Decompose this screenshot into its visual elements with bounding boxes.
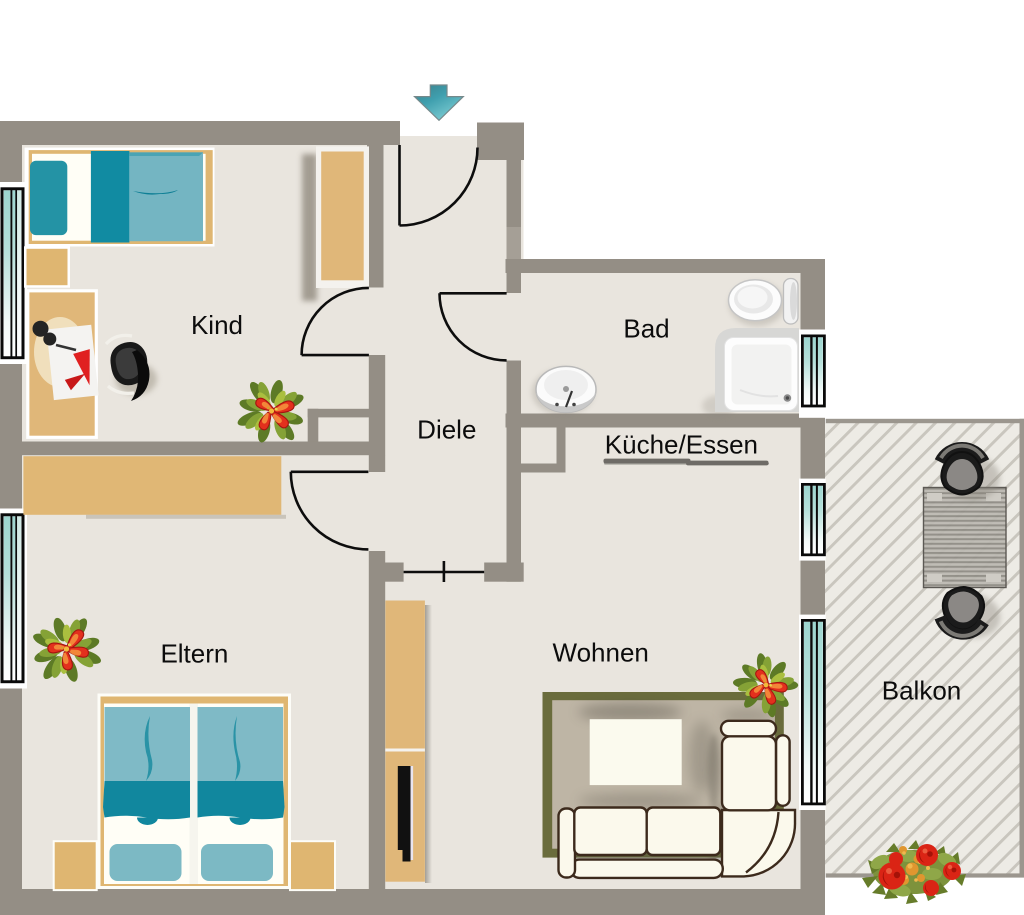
svg-text:Kind: Kind xyxy=(191,310,243,340)
svg-text:Eltern: Eltern xyxy=(160,639,228,669)
svg-text:Küche/Essen: Küche/Essen xyxy=(605,430,758,460)
svg-text:Balkon: Balkon xyxy=(882,675,962,705)
svg-text:Diele: Diele xyxy=(417,415,476,445)
svg-text:Wohnen: Wohnen xyxy=(553,638,649,668)
svg-text:Bad: Bad xyxy=(623,314,669,344)
